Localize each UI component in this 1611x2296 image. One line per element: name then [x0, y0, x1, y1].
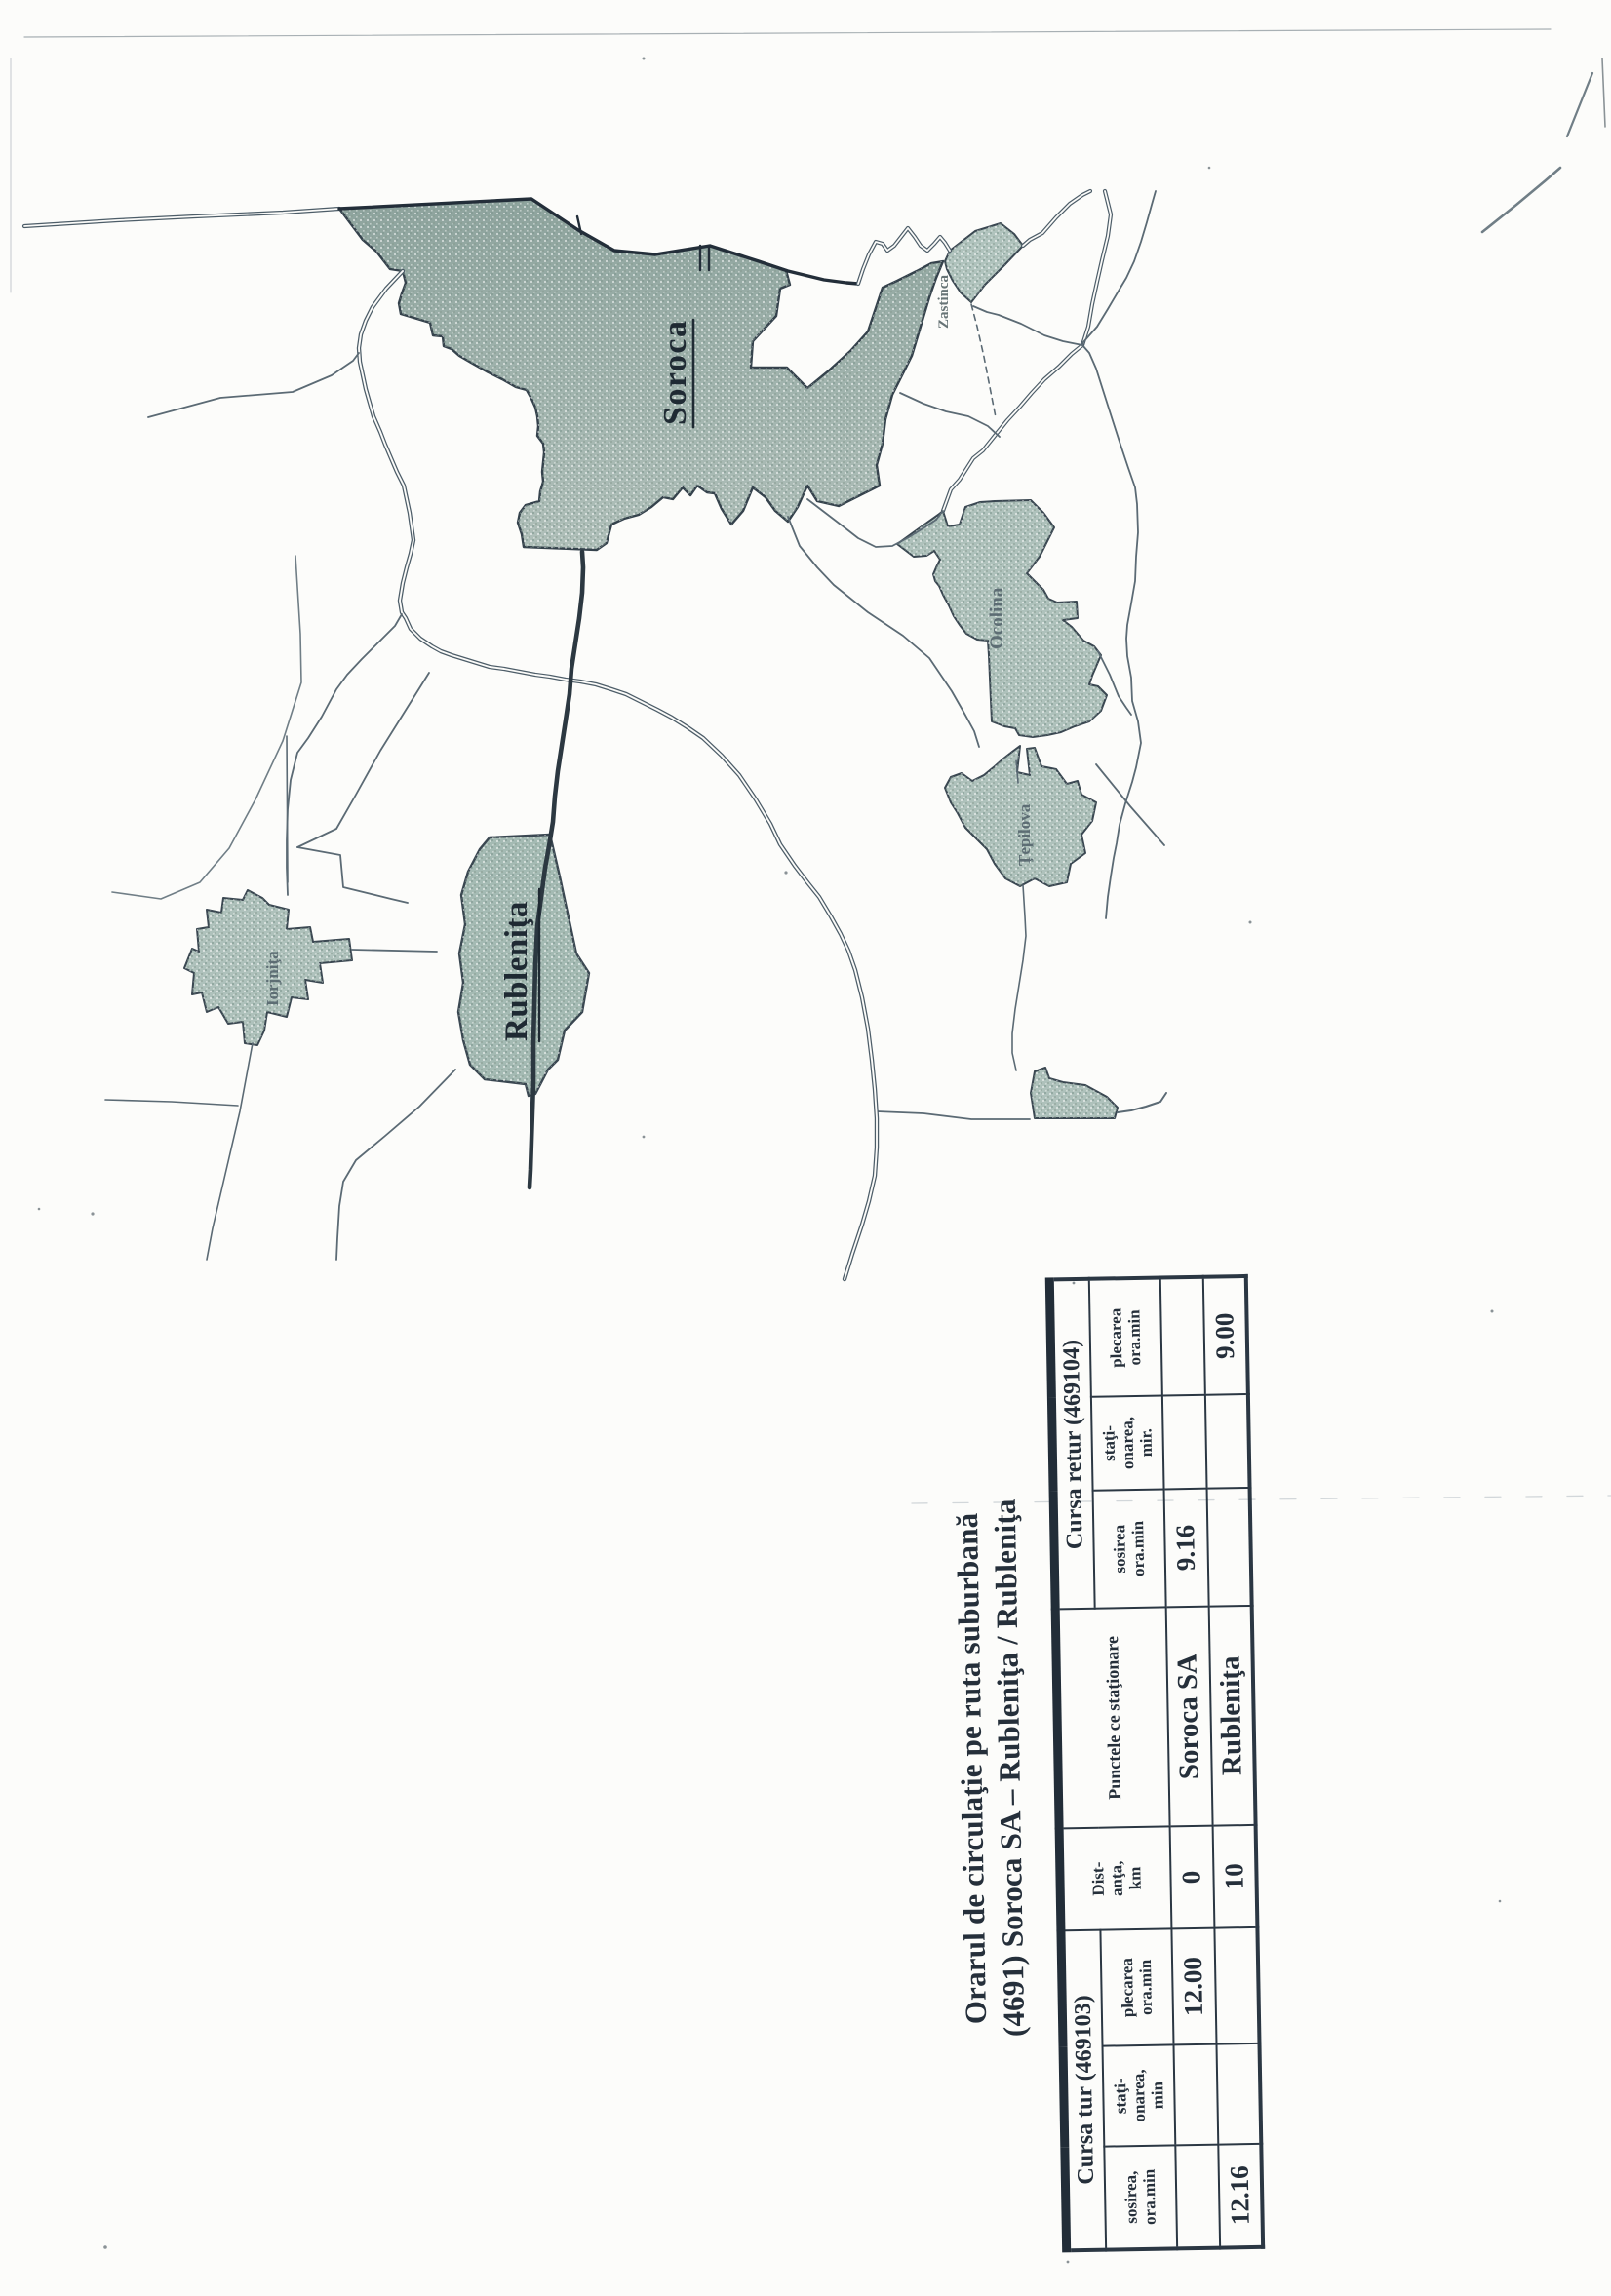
svg-text:Iorjniţa: Iorjniţa — [263, 951, 282, 1006]
svg-text:Ţepilova: Ţepilova — [1015, 803, 1034, 866]
svg-text:Rubleniţa: Rubleniţa — [499, 901, 534, 1041]
svg-text:Ocolina: Ocolina — [987, 587, 1007, 649]
svg-text:Soroca: Soroca — [657, 320, 693, 425]
svg-text:Zastinca: Zastinca — [936, 274, 952, 329]
